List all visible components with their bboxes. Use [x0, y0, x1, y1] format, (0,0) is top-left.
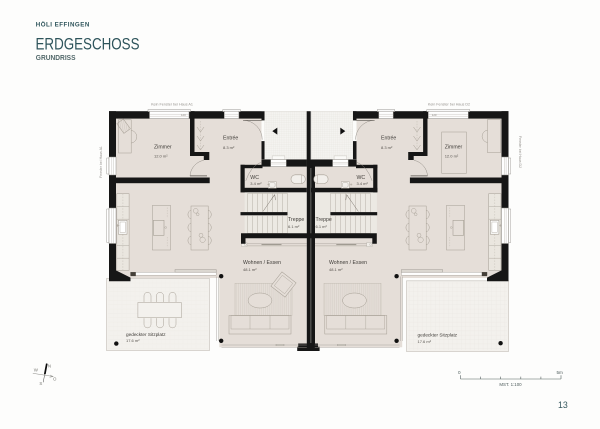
svg-text:Fenster bei Haus A1: Fenster bei Haus A1	[99, 146, 103, 178]
svg-text:6.1 m²: 6.1 m²	[288, 224, 300, 229]
svg-text:13: 13	[558, 400, 568, 410]
svg-text:HÖLI EFFINGEN: HÖLI EFFINGEN	[36, 21, 90, 28]
svg-text:0: 0	[458, 370, 461, 375]
svg-text:48.1 m²: 48.1 m²	[243, 267, 257, 272]
svg-text:8.3 m²: 8.3 m²	[223, 145, 235, 150]
svg-text:Kein Fenster bei Haus A1: Kein Fenster bei Haus A1	[151, 103, 193, 107]
svg-text:N: N	[48, 363, 51, 368]
svg-text:12.0 m²: 12.0 m²	[445, 153, 459, 158]
svg-text:gedeckter Sitzplatz: gedeckter Sitzplatz	[126, 332, 166, 337]
svg-text:48.1 m²: 48.1 m²	[329, 267, 343, 272]
svg-text:8.3 m²: 8.3 m²	[381, 145, 393, 150]
svg-text:Zimmer: Zimmer	[445, 144, 463, 150]
svg-text:O: O	[53, 377, 57, 382]
svg-text:Entrée: Entrée	[223, 135, 238, 141]
svg-text:120: 120	[432, 113, 437, 117]
svg-text:Wohnen / Essen: Wohnen / Essen	[329, 260, 367, 266]
svg-text:3.4 m²: 3.4 m²	[357, 181, 369, 186]
svg-text:5m: 5m	[557, 370, 564, 375]
svg-text:S: S	[39, 381, 42, 386]
svg-text:Treppe: Treppe	[288, 217, 304, 223]
svg-text:Treppe: Treppe	[316, 217, 332, 223]
svg-text:gedeckter Sitzplatz: gedeckter Sitzplatz	[418, 333, 458, 338]
svg-text:MST. 1:100: MST. 1:100	[499, 382, 522, 387]
svg-text:17.6 m²: 17.6 m²	[418, 339, 432, 344]
svg-text:Fenster bei Haus D2: Fenster bei Haus D2	[518, 136, 522, 168]
svg-text:6.1 m²: 6.1 m²	[316, 224, 328, 229]
svg-text:ERDGESCHOSS: ERDGESCHOSS	[36, 35, 140, 54]
svg-text:17.6 m²: 17.6 m²	[126, 338, 140, 343]
svg-text:3.4 m²: 3.4 m²	[250, 181, 262, 186]
svg-text:120: 120	[181, 113, 186, 117]
svg-text:Wohnen / Essen: Wohnen / Essen	[243, 260, 281, 266]
svg-text:Entrée: Entrée	[381, 135, 396, 141]
svg-text:Kein Fenster bei Haus D2: Kein Fenster bei Haus D2	[428, 103, 470, 107]
svg-text:Zimmer: Zimmer	[154, 144, 172, 150]
svg-text:12.0 m²: 12.0 m²	[154, 153, 168, 158]
svg-text:GRUNDRISS: GRUNDRISS	[36, 53, 76, 62]
